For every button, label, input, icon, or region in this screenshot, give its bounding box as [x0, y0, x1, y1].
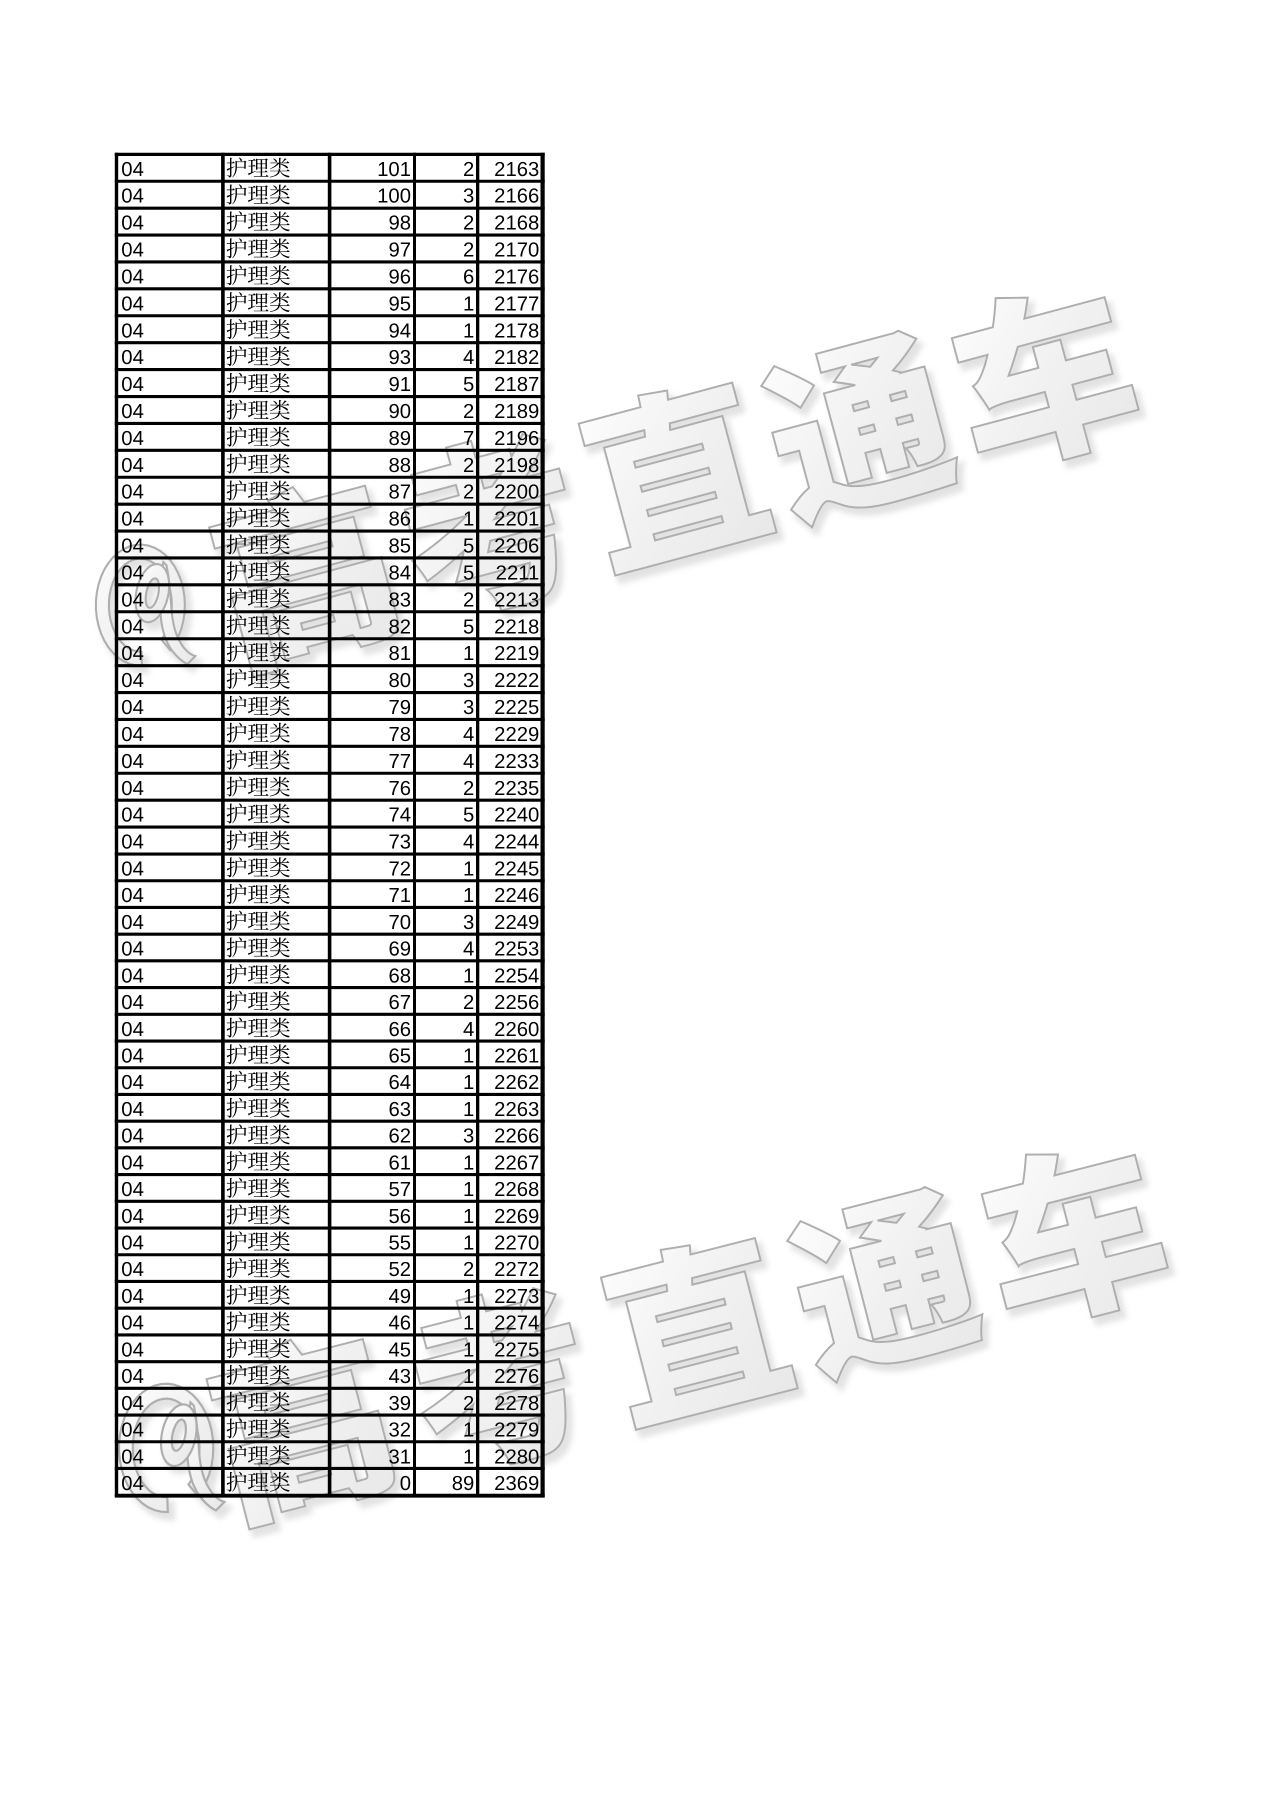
svg-text:04: 04 — [121, 1046, 144, 1068]
svg-text:04: 04 — [121, 616, 144, 638]
svg-text:2176: 2176 — [494, 266, 539, 288]
svg-text:3: 3 — [463, 186, 474, 208]
svg-text:3: 3 — [463, 670, 474, 692]
svg-text:31: 31 — [388, 1446, 411, 1468]
svg-text:2272: 2272 — [494, 1259, 539, 1281]
svg-text:6: 6 — [463, 266, 474, 288]
svg-text:1: 1 — [463, 885, 474, 907]
svg-text:94: 94 — [388, 320, 411, 342]
svg-text:2278: 2278 — [494, 1393, 539, 1415]
svg-text:5: 5 — [463, 536, 474, 558]
svg-text:4: 4 — [463, 832, 474, 854]
svg-text:82: 82 — [388, 616, 411, 638]
svg-text:4: 4 — [463, 724, 474, 746]
svg-text:1: 1 — [463, 1206, 474, 1228]
svg-text:04: 04 — [121, 455, 144, 477]
svg-text:04: 04 — [121, 320, 144, 342]
svg-text:04: 04 — [121, 1126, 144, 1148]
svg-text:2: 2 — [463, 240, 474, 262]
svg-text:2211: 2211 — [496, 563, 540, 585]
svg-text:2219: 2219 — [494, 643, 539, 665]
svg-text:89: 89 — [388, 428, 411, 450]
svg-text:80: 80 — [388, 670, 411, 692]
svg-text:2: 2 — [463, 213, 474, 235]
svg-text:72: 72 — [388, 859, 411, 881]
svg-text:1: 1 — [463, 1339, 474, 1361]
svg-text:56: 56 — [388, 1206, 411, 1228]
svg-text:2261: 2261 — [494, 1046, 539, 1068]
svg-text:1: 1 — [463, 1152, 474, 1174]
svg-text:7: 7 — [463, 428, 474, 450]
svg-text:04: 04 — [121, 213, 144, 235]
svg-text:85: 85 — [388, 536, 411, 558]
svg-text:04: 04 — [121, 965, 144, 987]
svg-text:04: 04 — [121, 912, 144, 934]
svg-text:65: 65 — [388, 1046, 411, 1068]
svg-text:2: 2 — [463, 482, 474, 504]
svg-text:2246: 2246 — [494, 885, 539, 907]
svg-text:49: 49 — [388, 1286, 411, 1308]
svg-text:04: 04 — [121, 536, 144, 558]
svg-text:5: 5 — [463, 805, 474, 827]
svg-text:2268: 2268 — [494, 1179, 539, 1201]
svg-text:2196: 2196 — [494, 428, 539, 450]
svg-text:4: 4 — [463, 1019, 474, 1041]
svg-text:04: 04 — [121, 1152, 144, 1174]
svg-text:2: 2 — [463, 455, 474, 477]
svg-text:04: 04 — [121, 1072, 144, 1094]
svg-text:52: 52 — [388, 1259, 411, 1281]
svg-text:04: 04 — [121, 1099, 144, 1121]
svg-text:1: 1 — [463, 320, 474, 342]
svg-text:04: 04 — [121, 724, 144, 746]
svg-text:78: 78 — [388, 724, 411, 746]
svg-text:04: 04 — [121, 1233, 144, 1255]
svg-text:46: 46 — [388, 1313, 411, 1335]
svg-text:2263: 2263 — [494, 1099, 539, 1121]
svg-text:66: 66 — [388, 1019, 411, 1041]
svg-text:2222: 2222 — [494, 670, 539, 692]
svg-text:1: 1 — [463, 1046, 474, 1068]
svg-text:04: 04 — [121, 266, 144, 288]
svg-text:69: 69 — [388, 939, 411, 961]
svg-text:93: 93 — [388, 347, 411, 369]
svg-text:2244: 2244 — [494, 832, 539, 854]
svg-text:04: 04 — [121, 293, 144, 315]
svg-text:1: 1 — [463, 1313, 474, 1335]
svg-text:04: 04 — [121, 589, 144, 611]
svg-text:91: 91 — [388, 374, 411, 396]
svg-text:2201: 2201 — [494, 509, 539, 531]
svg-text:39: 39 — [388, 1393, 411, 1415]
svg-text:1: 1 — [463, 1179, 474, 1201]
svg-text:2276: 2276 — [494, 1366, 539, 1388]
svg-text:77: 77 — [388, 751, 411, 773]
svg-text:04: 04 — [121, 1259, 144, 1281]
svg-text:62: 62 — [388, 1126, 411, 1148]
svg-text:04: 04 — [121, 186, 144, 208]
svg-text:1: 1 — [463, 1072, 474, 1094]
svg-text:2218: 2218 — [494, 616, 539, 638]
svg-text:1: 1 — [463, 1099, 474, 1121]
svg-text:04: 04 — [121, 509, 144, 531]
svg-text:04: 04 — [121, 347, 144, 369]
svg-text:04: 04 — [121, 778, 144, 800]
svg-text:04: 04 — [121, 1420, 144, 1442]
svg-text:1: 1 — [463, 509, 474, 531]
svg-text:04: 04 — [121, 805, 144, 827]
svg-text:2235: 2235 — [494, 778, 539, 800]
svg-text:04: 04 — [121, 697, 144, 719]
svg-text:2200: 2200 — [494, 482, 539, 504]
svg-text:04: 04 — [121, 1286, 144, 1308]
svg-text:2274: 2274 — [494, 1313, 539, 1335]
svg-text:04: 04 — [121, 992, 144, 1014]
svg-text:4: 4 — [463, 347, 474, 369]
svg-text:04: 04 — [121, 885, 144, 907]
svg-text:2168: 2168 — [494, 213, 539, 235]
svg-text:98: 98 — [388, 213, 411, 235]
svg-text:2249: 2249 — [494, 912, 539, 934]
svg-text:64: 64 — [388, 1072, 411, 1094]
svg-text:2170: 2170 — [494, 240, 539, 262]
svg-text:76: 76 — [388, 778, 411, 800]
svg-text:2166: 2166 — [494, 186, 539, 208]
svg-text:2256: 2256 — [494, 992, 539, 1014]
svg-text:04: 04 — [121, 1179, 144, 1201]
svg-text:2269: 2269 — [494, 1206, 539, 1228]
svg-text:1: 1 — [463, 1286, 474, 1308]
svg-text:74: 74 — [388, 805, 411, 827]
svg-text:04: 04 — [121, 482, 144, 504]
svg-text:04: 04 — [121, 939, 144, 961]
svg-text:04: 04 — [121, 563, 144, 585]
svg-text:2213: 2213 — [494, 589, 539, 611]
svg-text:1: 1 — [463, 1420, 474, 1442]
svg-text:1: 1 — [463, 643, 474, 665]
svg-text:2267: 2267 — [494, 1152, 539, 1174]
svg-text:2262: 2262 — [494, 1072, 539, 1094]
svg-text:04: 04 — [121, 1206, 144, 1228]
svg-text:04: 04 — [121, 1339, 144, 1361]
svg-text:04: 04 — [121, 401, 144, 423]
svg-text:71: 71 — [388, 885, 411, 907]
svg-text:45: 45 — [388, 1339, 411, 1361]
svg-text:4: 4 — [463, 751, 474, 773]
svg-text:2240: 2240 — [494, 805, 539, 827]
svg-text:88: 88 — [388, 455, 411, 477]
svg-text:5: 5 — [463, 374, 474, 396]
svg-text:95: 95 — [388, 293, 411, 315]
svg-text:73: 73 — [388, 832, 411, 854]
svg-text:57: 57 — [388, 1179, 411, 1201]
svg-text:2163: 2163 — [494, 159, 539, 181]
svg-text:04: 04 — [121, 859, 144, 881]
svg-text:79: 79 — [388, 697, 411, 719]
svg-text:3: 3 — [463, 912, 474, 934]
svg-text:04: 04 — [121, 428, 144, 450]
svg-text:2266: 2266 — [494, 1126, 539, 1148]
svg-text:2280: 2280 — [494, 1446, 539, 1468]
svg-text:1: 1 — [463, 1446, 474, 1468]
svg-text:04: 04 — [121, 643, 144, 665]
svg-text:2270: 2270 — [494, 1233, 539, 1255]
svg-text:55: 55 — [388, 1233, 411, 1255]
svg-text:1: 1 — [463, 1366, 474, 1388]
svg-text:101: 101 — [377, 159, 411, 181]
svg-text:61: 61 — [388, 1152, 411, 1174]
svg-text:2260: 2260 — [494, 1019, 539, 1041]
svg-text:2279: 2279 — [494, 1420, 539, 1442]
svg-text:90: 90 — [388, 401, 411, 423]
svg-text:04: 04 — [121, 374, 144, 396]
svg-text:5: 5 — [463, 563, 474, 585]
svg-text:81: 81 — [388, 643, 411, 665]
svg-text:2182: 2182 — [494, 347, 539, 369]
svg-text:1: 1 — [463, 1233, 474, 1255]
svg-text:70: 70 — [388, 912, 411, 934]
svg-text:2253: 2253 — [494, 939, 539, 961]
svg-text:5: 5 — [463, 616, 474, 638]
svg-text:2198: 2198 — [494, 455, 539, 477]
svg-text:2233: 2233 — [494, 751, 539, 773]
svg-text:0: 0 — [400, 1473, 411, 1495]
svg-text:04: 04 — [121, 670, 144, 692]
svg-text:2: 2 — [463, 992, 474, 1014]
svg-text:04: 04 — [121, 1393, 144, 1415]
svg-text:04: 04 — [121, 240, 144, 262]
svg-text:1: 1 — [463, 293, 474, 315]
svg-text:32: 32 — [388, 1420, 411, 1442]
svg-text:2: 2 — [463, 401, 474, 423]
svg-text:2206: 2206 — [494, 536, 539, 558]
svg-text:04: 04 — [121, 832, 144, 854]
svg-text:96: 96 — [388, 266, 411, 288]
svg-text:83: 83 — [388, 589, 411, 611]
svg-text:68: 68 — [388, 965, 411, 987]
svg-text:2245: 2245 — [494, 859, 539, 881]
svg-text:04: 04 — [121, 159, 144, 181]
svg-text:2275: 2275 — [494, 1339, 539, 1361]
svg-text:1: 1 — [463, 859, 474, 881]
svg-text:3: 3 — [463, 697, 474, 719]
svg-text:86: 86 — [388, 509, 411, 531]
svg-text:43: 43 — [388, 1366, 411, 1388]
svg-text:2: 2 — [463, 589, 474, 611]
svg-text:04: 04 — [121, 1313, 144, 1335]
svg-text:2369: 2369 — [494, 1473, 539, 1495]
svg-text:2: 2 — [463, 778, 474, 800]
svg-text:97: 97 — [388, 240, 411, 262]
svg-text:2225: 2225 — [494, 697, 539, 719]
svg-text:63: 63 — [388, 1099, 411, 1121]
svg-text:2: 2 — [463, 1393, 474, 1415]
svg-text:2229: 2229 — [494, 724, 539, 746]
svg-text:04: 04 — [121, 1019, 144, 1041]
svg-text:100: 100 — [377, 186, 411, 208]
svg-text:87: 87 — [388, 482, 411, 504]
svg-text:04: 04 — [121, 1446, 144, 1468]
svg-text:2187: 2187 — [494, 374, 539, 396]
svg-text:2: 2 — [463, 1259, 474, 1281]
svg-text:1: 1 — [463, 965, 474, 987]
svg-text:84: 84 — [388, 563, 411, 585]
svg-text:04: 04 — [121, 1366, 144, 1388]
svg-text:4: 4 — [463, 939, 474, 961]
svg-text:3: 3 — [463, 1126, 474, 1148]
svg-text:04: 04 — [121, 1473, 144, 1495]
svg-text:2178: 2178 — [494, 320, 539, 342]
svg-text:67: 67 — [388, 992, 411, 1014]
svg-text:2254: 2254 — [494, 965, 539, 987]
svg-text:2273: 2273 — [494, 1286, 539, 1308]
svg-text:2: 2 — [463, 159, 474, 181]
svg-text:89: 89 — [452, 1473, 475, 1495]
svg-text:2177: 2177 — [494, 293, 539, 315]
svg-text:04: 04 — [121, 751, 144, 773]
svg-text:2189: 2189 — [494, 401, 539, 423]
